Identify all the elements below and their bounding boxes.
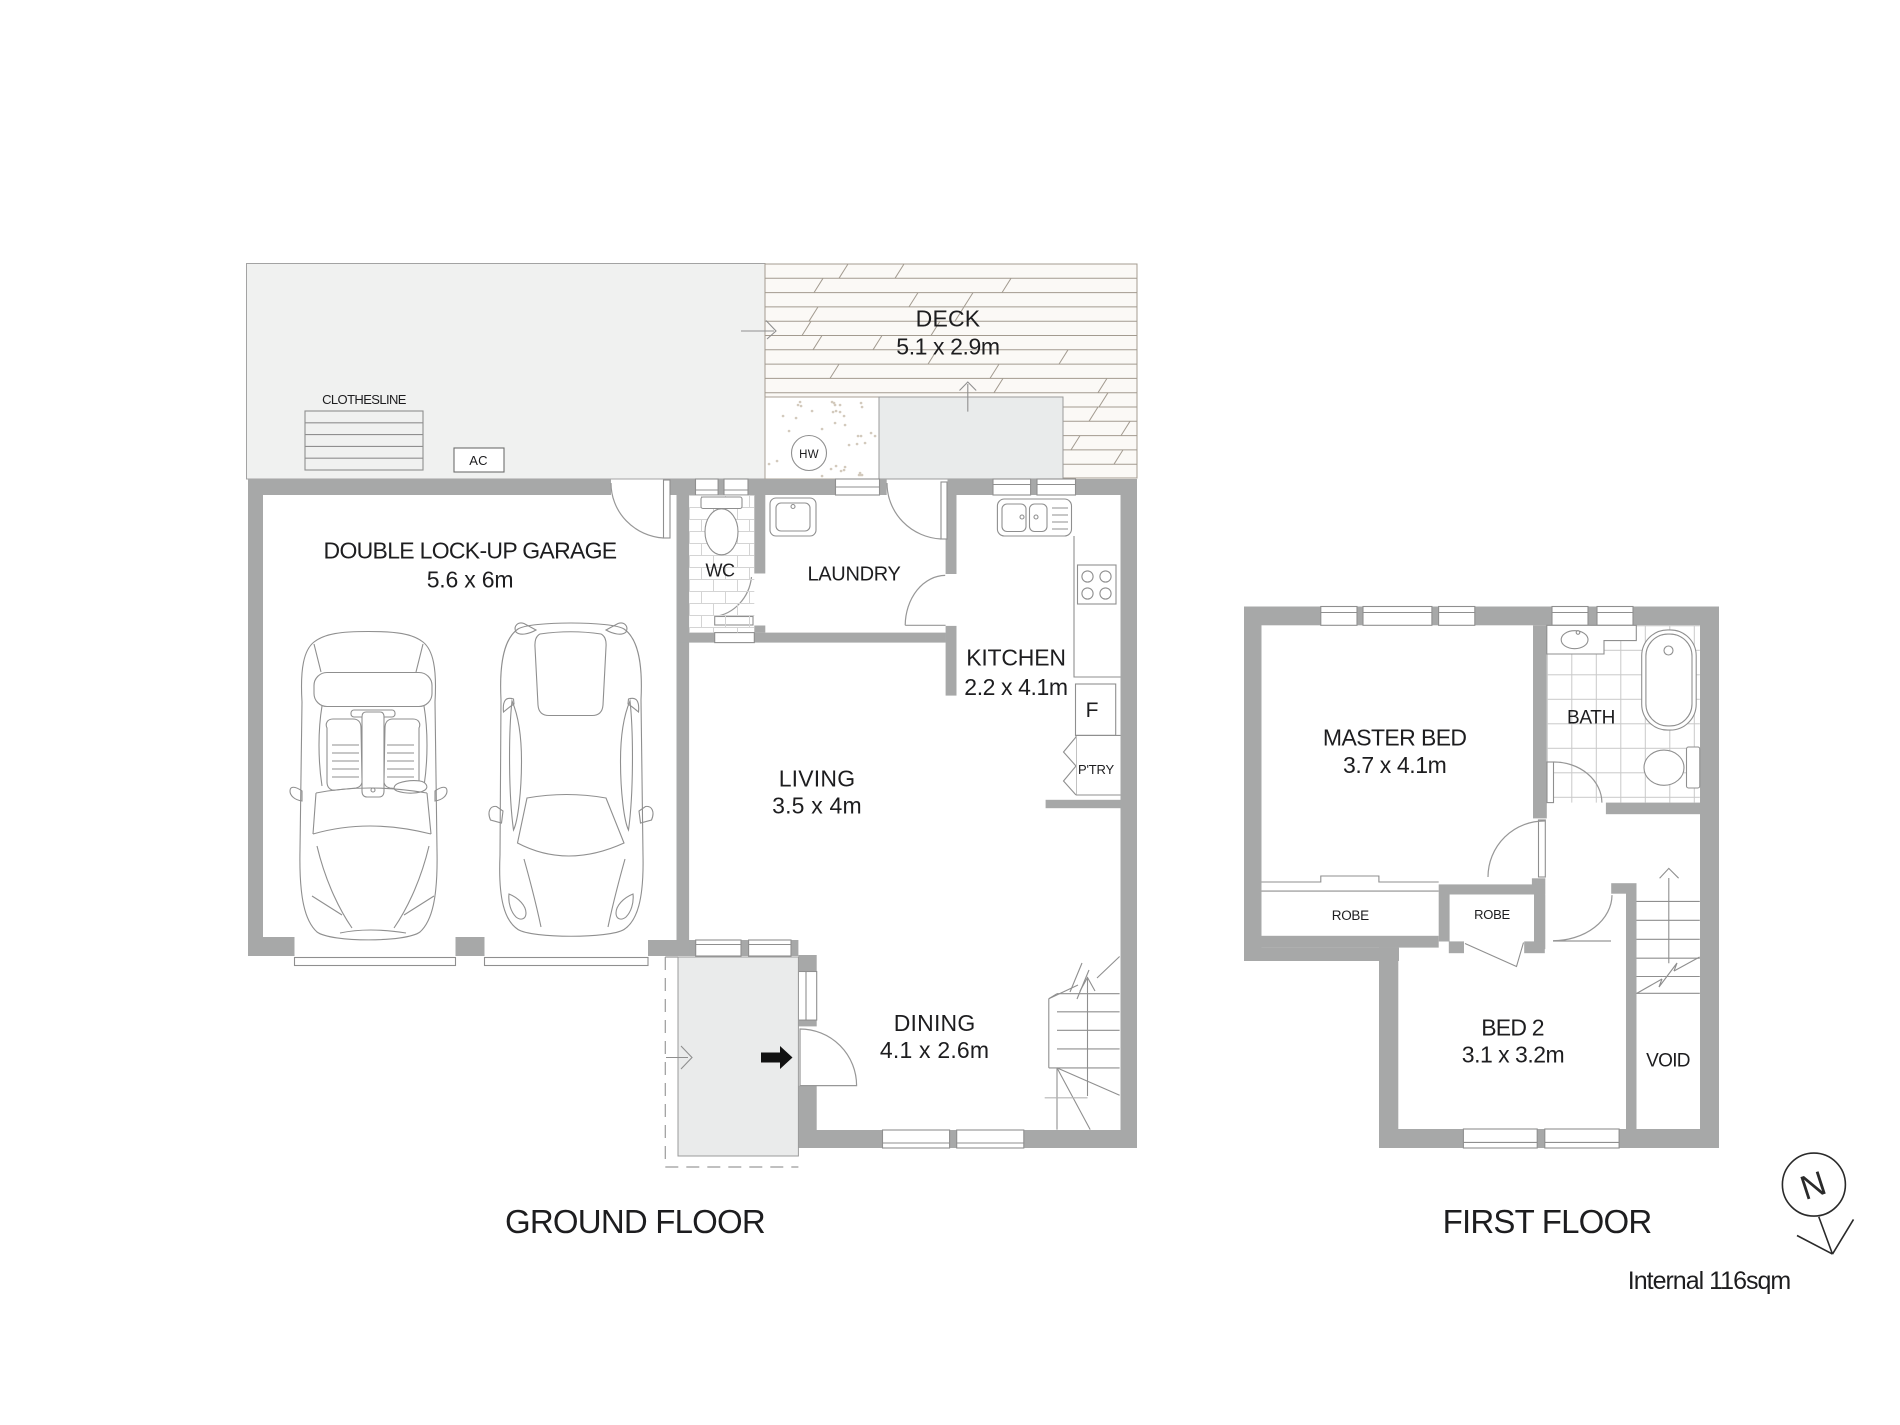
- svg-text:GROUND FLOOR: GROUND FLOOR: [505, 1203, 765, 1240]
- svg-text:MASTER BED: MASTER BED: [1323, 725, 1467, 751]
- svg-text:VOID: VOID: [1646, 1051, 1690, 1072]
- svg-text:DOUBLE LOCK-UP GARAGE: DOUBLE LOCK-UP GARAGE: [324, 538, 617, 564]
- svg-text:4.1 x 2.6m: 4.1 x 2.6m: [880, 1037, 989, 1063]
- svg-text:DECK: DECK: [916, 306, 981, 332]
- svg-text:2.2 x 4.1m: 2.2 x 4.1m: [964, 674, 1067, 700]
- svg-text:LIVING: LIVING: [779, 765, 856, 791]
- svg-text:DINING: DINING: [894, 1010, 976, 1036]
- svg-text:5.6 x 6m: 5.6 x 6m: [427, 567, 514, 593]
- svg-text:HW: HW: [799, 449, 819, 461]
- svg-text:ROBE: ROBE: [1332, 908, 1369, 923]
- svg-text:3.1 x 3.2m: 3.1 x 3.2m: [1462, 1041, 1564, 1067]
- svg-text:3.5 x 4m: 3.5 x 4m: [772, 792, 862, 818]
- svg-text:LAUNDRY: LAUNDRY: [807, 564, 900, 586]
- svg-text:AC: AC: [469, 453, 487, 468]
- svg-text:FIRST FLOOR: FIRST FLOOR: [1443, 1203, 1652, 1240]
- svg-text:BED 2: BED 2: [1481, 1015, 1543, 1041]
- svg-text:BATH: BATH: [1567, 708, 1615, 729]
- svg-text:P'TRY: P'TRY: [1078, 762, 1114, 777]
- svg-text:CLOTHESLINE: CLOTHESLINE: [322, 392, 407, 407]
- svg-text:Internal 116sqm: Internal 116sqm: [1628, 1267, 1791, 1295]
- svg-text:F: F: [1086, 699, 1099, 722]
- svg-text:5.1 x 2.9m: 5.1 x 2.9m: [896, 334, 999, 360]
- svg-text:WC: WC: [706, 561, 735, 581]
- svg-text:ROBE: ROBE: [1474, 907, 1510, 922]
- svg-text:KITCHEN: KITCHEN: [966, 644, 1066, 670]
- svg-text:3.7 x 4.1m: 3.7 x 4.1m: [1343, 752, 1446, 778]
